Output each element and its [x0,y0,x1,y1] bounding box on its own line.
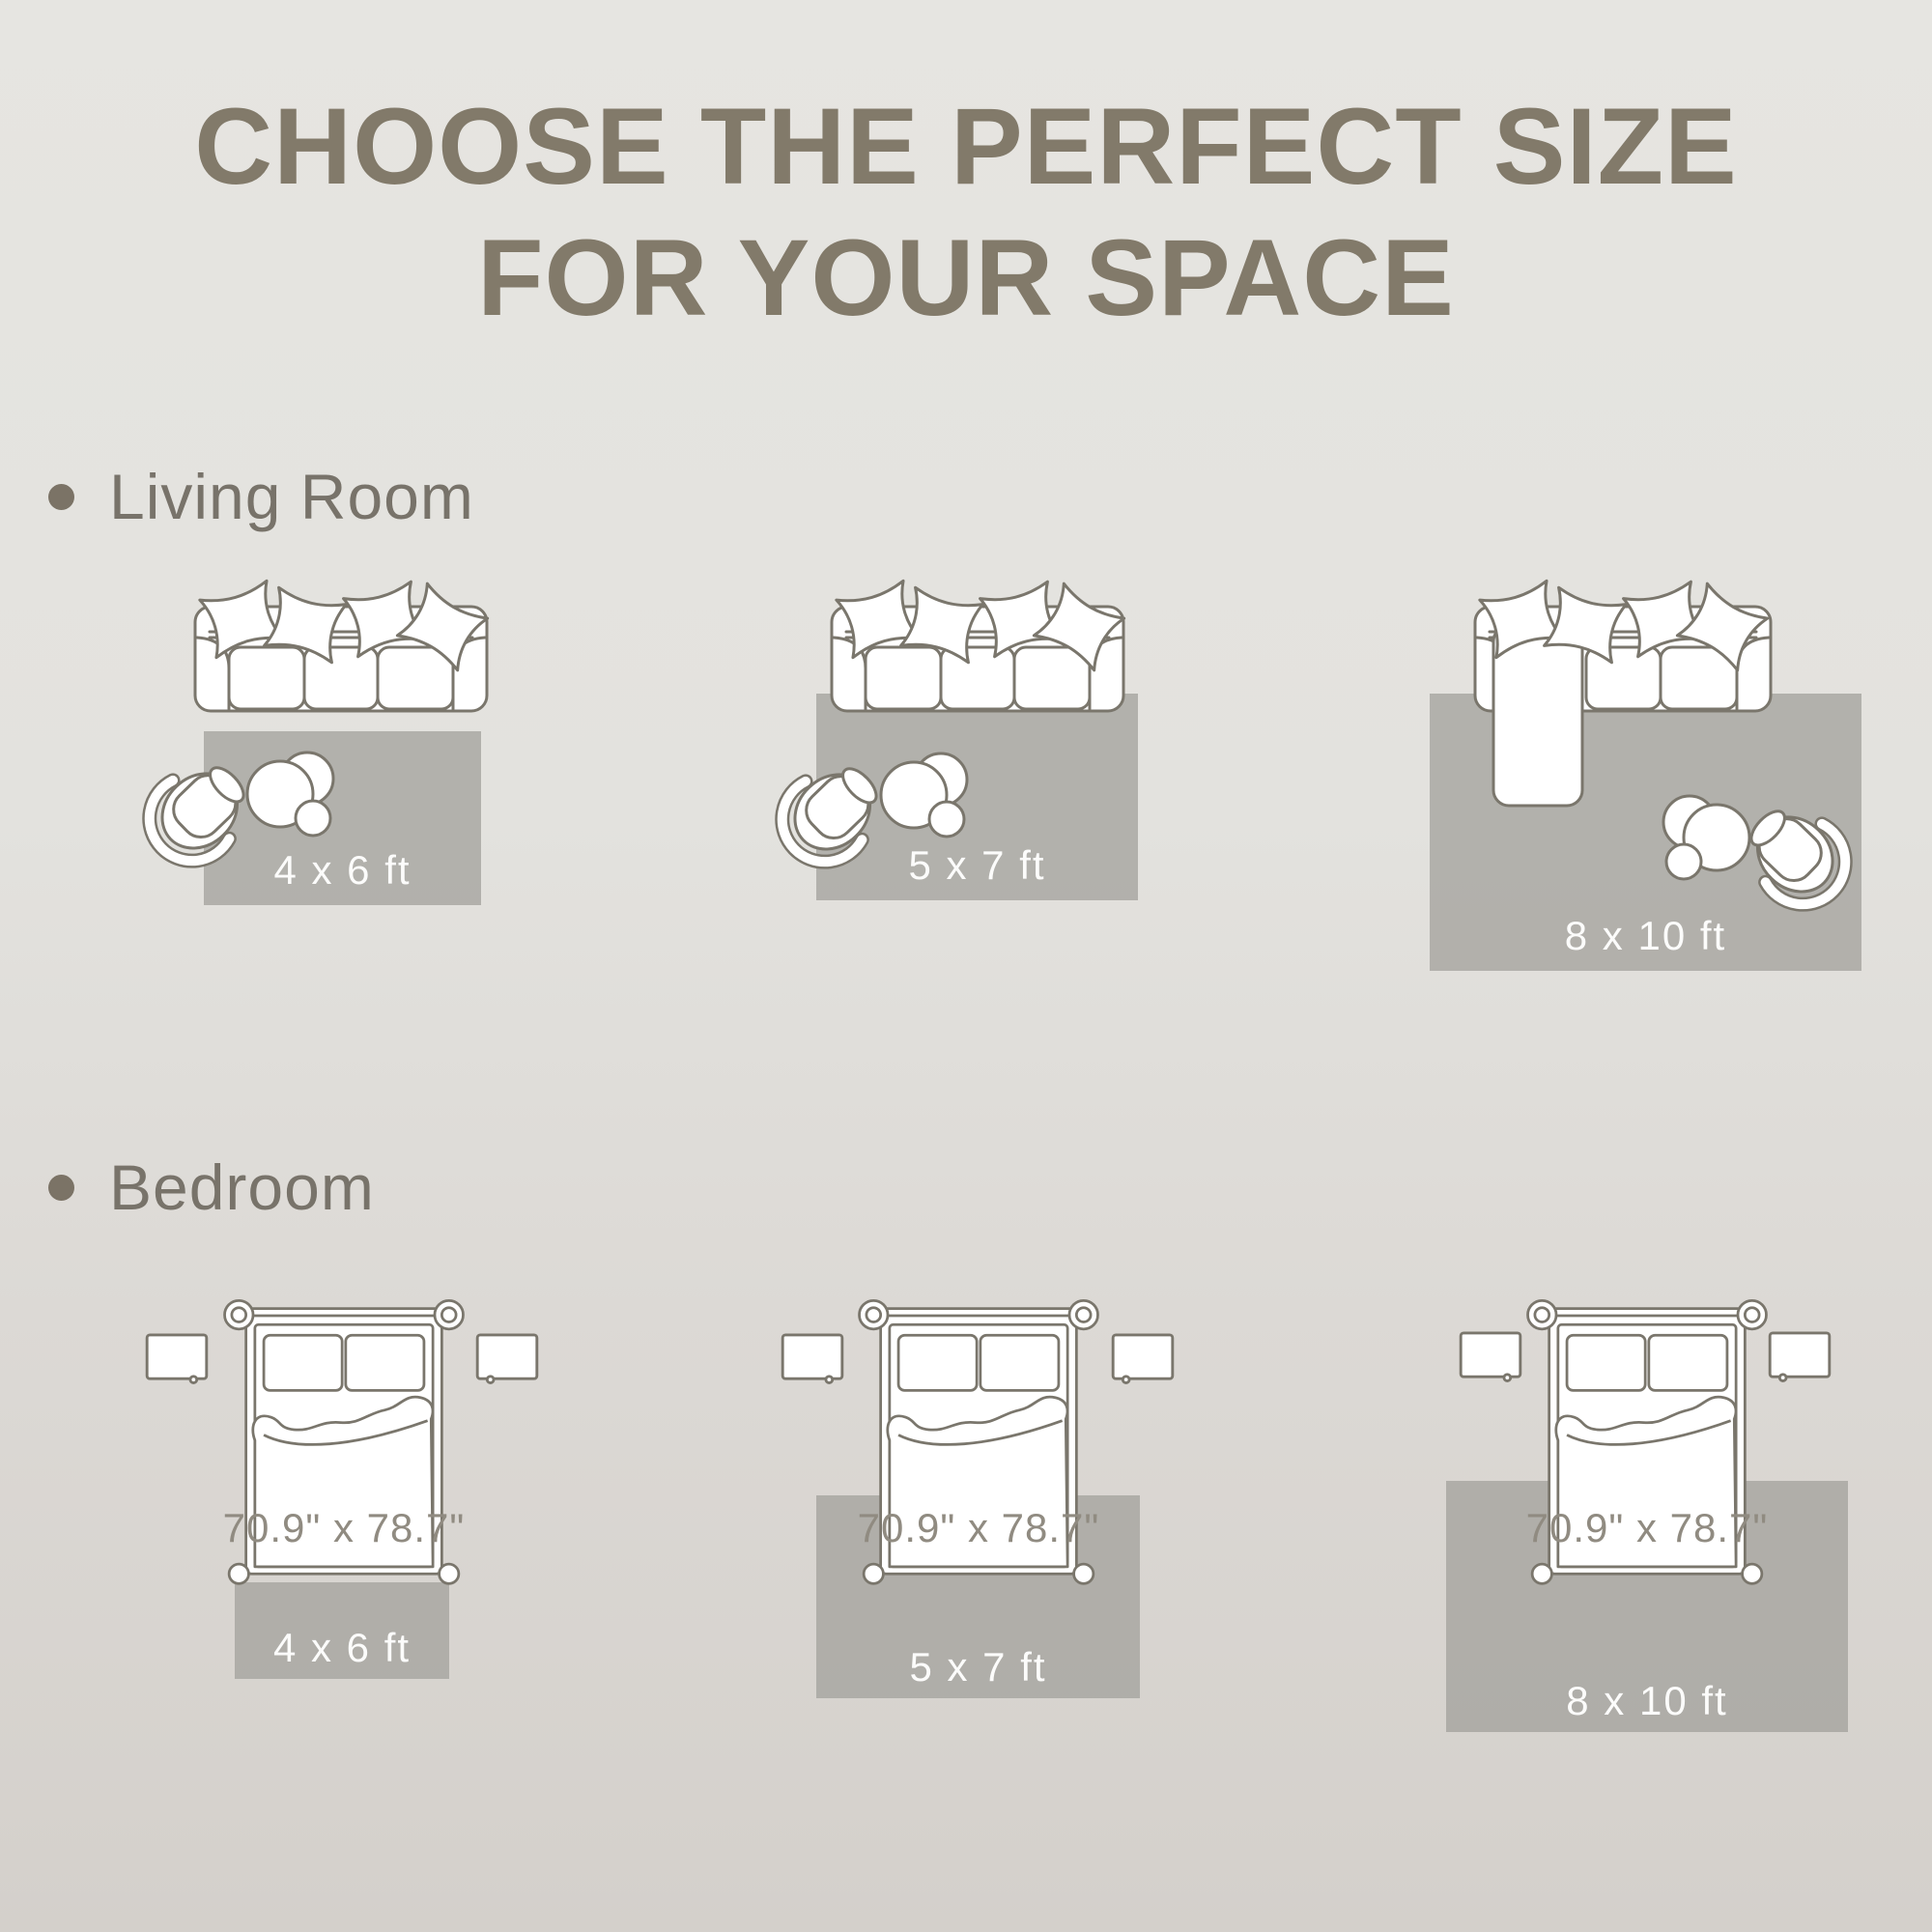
nightstand-icon [1459,1331,1522,1381]
rug-4x6: 4 x 6 ft [235,1582,449,1679]
sofa-icon [192,578,490,713]
bullet-icon [48,1175,74,1201]
bullet-icon [48,484,74,510]
nightstand-icon [475,1333,539,1383]
nightstand-icon [1111,1333,1175,1383]
bed-size-label: 70.9" x 78.7" [858,1505,1100,1551]
section-label: Living Room [109,460,474,533]
rug-size-infographic: CHOOSE THE PERFECT SIZE FOR YOUR SPACE L… [0,0,1932,1932]
section-label: Bedroom [109,1151,375,1224]
page-title: CHOOSE THE PERFECT SIZE FOR YOUR SPACE [0,81,1932,343]
sofa-icon [829,578,1126,713]
coffee-table-icon [877,743,978,843]
bed-size-label: 70.9" x 78.7" [1526,1505,1769,1551]
sectional-sofa-icon [1472,578,1774,810]
bed-size-label: 70.9" x 78.7" [223,1505,466,1551]
nightstand-icon [145,1333,209,1383]
rug-size-label: 5 x 7 ft [816,1644,1140,1690]
nightstand-icon [781,1333,844,1383]
section-header-living-room: Living Room [48,452,474,541]
page-title-line1: CHOOSE THE PERFECT SIZE [0,81,1932,213]
section-header-bedroom: Bedroom [48,1143,375,1232]
rug-size-label: 4 x 6 ft [204,847,481,894]
rug-size-label: 4 x 6 ft [235,1625,449,1671]
coffee-table-icon [243,742,344,842]
page-title-line2: FOR YOUR SPACE [0,213,1932,344]
coffee-table-icon [1653,785,1753,886]
rug-size-label: 8 x 10 ft [1446,1678,1848,1724]
nightstand-icon [1768,1331,1832,1381]
